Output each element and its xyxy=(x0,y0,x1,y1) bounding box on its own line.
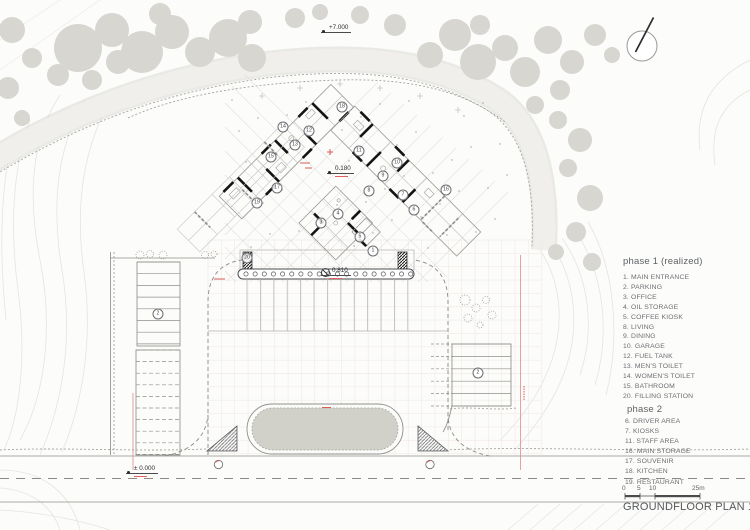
phase2-heading: phase 2 xyxy=(627,404,662,415)
room-number-marker: 18 xyxy=(337,102,348,113)
room-number-marker: 16 xyxy=(441,185,452,196)
room-number-marker: 3 xyxy=(316,218,327,229)
room-number-marker: 7 xyxy=(398,190,409,201)
legend-item: 8. LIVING xyxy=(623,323,695,333)
shrubs xyxy=(136,251,496,329)
traffic-triangle-left xyxy=(207,426,237,451)
legend-item: 20. FILLING STATION xyxy=(623,392,695,402)
traffic-triangle-right xyxy=(418,426,448,451)
room-number-marker: 13 xyxy=(290,140,301,151)
room-number-marker: 14 xyxy=(278,122,289,133)
level-marker: ± 0.000 xyxy=(126,465,158,474)
room-number-marker: 2 xyxy=(473,368,484,379)
manhole-markers xyxy=(214,460,434,468)
groundfloor-plan-page: phase 1 (realized) 1. MAIN ENTRANCE2. PA… xyxy=(0,0,750,530)
room-number-marker: 12 xyxy=(304,126,315,137)
scale-label: 10 xyxy=(649,485,656,492)
legend-item: 9. DINING xyxy=(623,332,695,342)
scale-bar-graphic xyxy=(625,493,700,500)
north-arrow-icon xyxy=(627,18,657,62)
legend-item: 14. WOMEN'S TOILET xyxy=(623,372,695,382)
legend-item: 16. MAIN STORAGE xyxy=(625,447,691,457)
room-number-marker: 20 xyxy=(242,253,253,264)
scale-label: 0 xyxy=(622,485,626,492)
legend-item: 6. DRIVER AREA xyxy=(625,417,691,427)
room-number-marker: 4 xyxy=(333,209,344,220)
legend-item: 17. SOUVENIR xyxy=(625,457,691,467)
parking-right xyxy=(431,344,516,432)
scale-label: 25m xyxy=(692,485,705,492)
phase1-heading: phase 1 (realized) xyxy=(623,256,703,267)
level-marker: 0.180 xyxy=(327,165,354,174)
room-number-marker: 11 xyxy=(354,146,365,157)
room-number-marker: 6 xyxy=(409,205,420,216)
phase2-list: 6. DRIVER AREA7. KIOSKS11. STAFF AREA16.… xyxy=(625,417,691,488)
room-number-marker: 19 xyxy=(252,198,263,209)
room-number-marker: 8 xyxy=(364,186,375,197)
legend-item: 19. RESTAURANT xyxy=(625,478,691,488)
legend-item: 2. PARKING xyxy=(623,283,695,293)
plan-title: GROUNDFLOOR PLAN 1:200 xyxy=(623,501,750,513)
phase1-list: 1. MAIN ENTRANCE2. PARKING3. OFFICE4. OI… xyxy=(623,273,695,402)
level-marker: 0.810 xyxy=(321,267,351,276)
room-number-marker: 15 xyxy=(266,152,277,163)
room-number-marker: 1 xyxy=(368,246,379,257)
room-number-marker: 9 xyxy=(378,171,389,182)
legend-item: 4. OIL STORAGE xyxy=(623,303,695,313)
legend-item: 18. KITCHEN xyxy=(625,467,691,477)
scale-label: 5 xyxy=(637,485,641,492)
legend-item: 7. KIOSKS xyxy=(625,427,691,437)
legend-item: 15. BATHROOM xyxy=(623,382,695,392)
room-number-marker: 5 xyxy=(355,232,366,243)
legend-item: 1. MAIN ENTRANCE xyxy=(623,273,695,283)
room-number-marker: 10 xyxy=(392,158,403,169)
legend-item: 3. OFFICE xyxy=(623,293,695,303)
legend-item: 13. MEN'S TOILET xyxy=(623,362,695,372)
legend-item: 11. STAFF AREA xyxy=(625,437,691,447)
wing-phase2 xyxy=(177,125,304,252)
legend-item: 12. FUEL TANK xyxy=(623,352,695,362)
level-marker: +7.000 xyxy=(321,24,351,33)
legend-item: 5. COFFEE KIOSK xyxy=(623,313,695,323)
traffic-island xyxy=(247,404,403,454)
room-number-marker: 2 xyxy=(153,309,164,320)
room-number-marker: 17 xyxy=(272,183,283,194)
legend-item: 10. GARAGE xyxy=(623,342,695,352)
parking-left xyxy=(136,262,180,455)
